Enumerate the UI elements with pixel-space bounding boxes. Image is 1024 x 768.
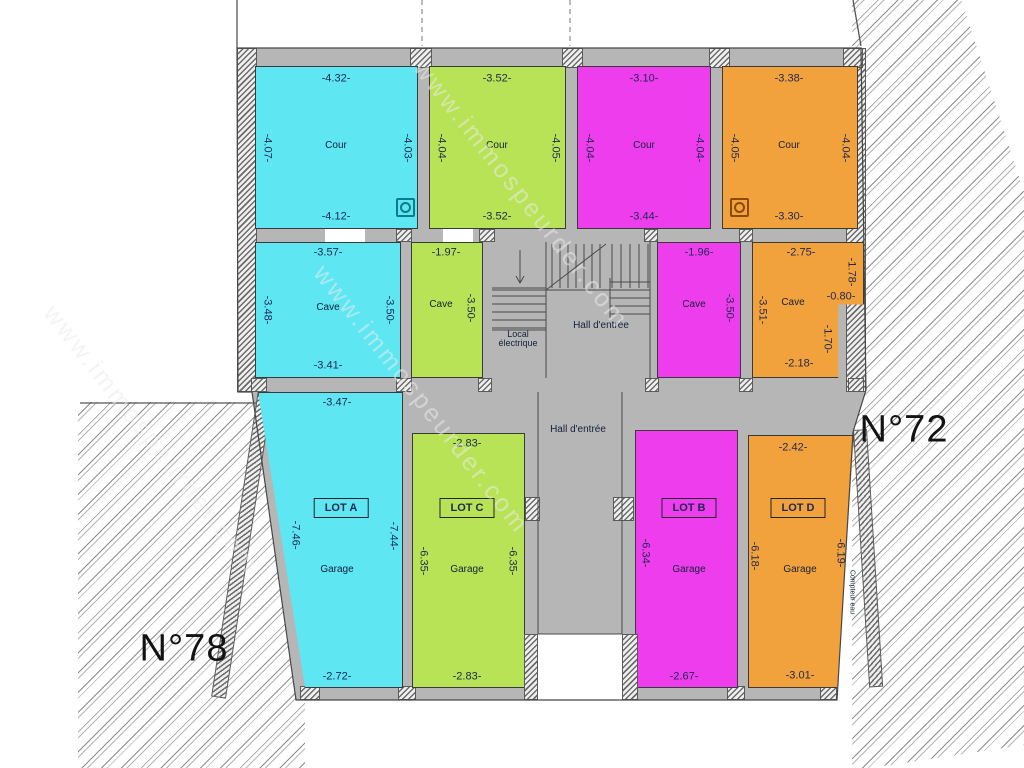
- dim-top: -3.10-: [630, 74, 659, 85]
- room-label: Garage: [320, 565, 353, 575]
- dim-bottom: -3.01-: [786, 671, 815, 682]
- dim-right: -4.03-: [402, 134, 413, 163]
- dim-bottom: -3.30-: [775, 212, 804, 223]
- wall-pillar: [739, 378, 753, 392]
- wall-pillar: [479, 229, 495, 242]
- floor-plan: -4.32- -4.07- -4.03- Cour -4.12- -3.52- …: [0, 0, 1024, 768]
- wall-pillar: [478, 378, 492, 392]
- dim-right: -3.50-: [384, 296, 395, 325]
- wall-pillar: [525, 497, 540, 521]
- wall-pillar: [410, 48, 432, 68]
- dim-right: -6.35-: [507, 547, 518, 576]
- lot-d-label: LOT D: [771, 498, 826, 518]
- wall-pillar: [251, 378, 267, 392]
- dim-top: -2.42-: [779, 443, 808, 454]
- dim-left: -4.07-: [262, 134, 273, 163]
- dim-bottom: -3.44-: [630, 212, 659, 223]
- room-label: Cour: [325, 141, 347, 151]
- dim-right: -3.50-: [465, 294, 476, 323]
- wall-pillar: [300, 686, 320, 700]
- dim-right: -3.50-: [724, 294, 735, 323]
- dim-left: -6.34-: [640, 539, 651, 568]
- dim-top: -3.47-: [323, 398, 352, 409]
- dim-top: -3.52-: [483, 74, 512, 85]
- room-label: Garage: [783, 565, 816, 575]
- local-line2: électrique: [498, 338, 537, 348]
- dim-bottom: -4.12-: [322, 212, 351, 223]
- lot-a-label: LOT A: [314, 498, 369, 518]
- room-label: Cour: [778, 141, 800, 151]
- dim-bottom: -3.41-: [314, 361, 343, 372]
- room-label: Cave: [781, 298, 804, 308]
- room-label: Cour: [486, 141, 508, 151]
- room-label-hall-lower: Hall d'entrée: [550, 425, 606, 435]
- wall-pillar: [739, 229, 753, 242]
- drain-icon: [396, 198, 415, 217]
- room-label-local-electrique: Local électrique: [498, 330, 537, 348]
- door-opening: [325, 229, 365, 242]
- dim-top: -3.38-: [775, 74, 804, 85]
- wall-pillar: [613, 497, 634, 521]
- dim-bottom: -3.52-: [483, 212, 512, 223]
- dim-step: -0.80-: [827, 292, 856, 303]
- room-label-hall-upper: Hall d'entrée: [573, 321, 629, 331]
- entry-opening: [538, 634, 622, 700]
- wall-pillar: [562, 48, 583, 68]
- wall-left: [237, 48, 257, 392]
- wall-pillar: [645, 378, 659, 392]
- water-meter-label: Compteur eau: [849, 570, 856, 614]
- room-label: Garage: [672, 565, 705, 575]
- room-label: Cour: [633, 141, 655, 151]
- wall-pillar: [727, 686, 745, 700]
- parcel-label-n72: N°72: [860, 409, 949, 452]
- dim-left: -4.04-: [584, 134, 595, 163]
- dim-left: -3.48-: [262, 296, 273, 325]
- parcel-label-n78: N°78: [140, 628, 229, 671]
- wall-pillar: [398, 686, 416, 700]
- lot-c-label: LOT C: [440, 498, 495, 518]
- dim-right-lower: -1.70-: [822, 325, 833, 354]
- dim-right: -7.44-: [388, 522, 399, 551]
- drain-icon: [730, 198, 749, 217]
- dim-top: -4.32-: [322, 74, 351, 85]
- dim-right: -4.04-: [840, 134, 851, 163]
- wall-pillar: [843, 48, 863, 68]
- door-opening: [443, 229, 473, 242]
- dim-top: -3.57-: [314, 248, 343, 259]
- dim-right-upper: -1.78-: [846, 258, 857, 287]
- dim-right: -4.04-: [694, 134, 705, 163]
- wall-pillar: [848, 378, 864, 392]
- dim-bottom: -2.83-: [453, 672, 482, 683]
- room-label: Cave: [682, 300, 705, 310]
- site-dashed-lines: [422, 0, 570, 46]
- dim-bottom: -2.18-: [785, 359, 814, 370]
- dim-top: -2.75-: [787, 248, 816, 259]
- wall-pillar: [622, 634, 638, 700]
- room-label: Garage: [450, 565, 483, 575]
- dim-top: -1.96-: [685, 248, 714, 259]
- dim-top: -1.97-: [432, 248, 461, 259]
- dim-left: -6.35-: [418, 547, 429, 576]
- lot-b-label: LOT B: [662, 498, 717, 518]
- dim-bottom: -2.67-: [670, 672, 699, 683]
- wall-pillar: [524, 634, 538, 700]
- dim-left: -3.51-: [757, 296, 768, 325]
- dim-bottom: -2.72-: [323, 672, 352, 683]
- dim-left: -4.04-: [436, 134, 447, 163]
- dim-left: -6.18-: [749, 542, 760, 571]
- dim-left: -4.05-: [729, 134, 740, 163]
- wall-pillar: [644, 229, 658, 242]
- room-label: Cave: [316, 303, 339, 313]
- dim-right: -4.05-: [550, 134, 561, 163]
- dim-top: -2.83-: [453, 439, 482, 450]
- wall-pillar: [709, 48, 730, 68]
- room-label: Cave: [429, 300, 452, 310]
- wall-pillar: [396, 378, 412, 392]
- wall-pillar: [820, 686, 837, 700]
- dim-right: -6.19-: [835, 539, 846, 568]
- wall-pillar: [396, 229, 412, 242]
- dim-left: -7.46-: [290, 521, 301, 550]
